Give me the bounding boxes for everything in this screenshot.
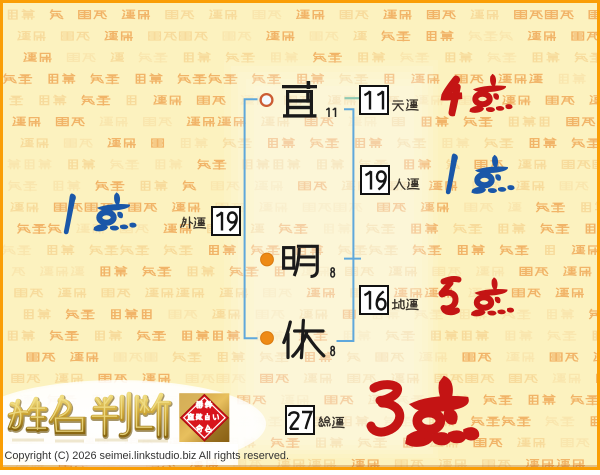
svg-text:Copyright (C) 2026 seimei.link: Copyright (C) 2026 seimei.linkstudio.biz… [5,450,290,462]
